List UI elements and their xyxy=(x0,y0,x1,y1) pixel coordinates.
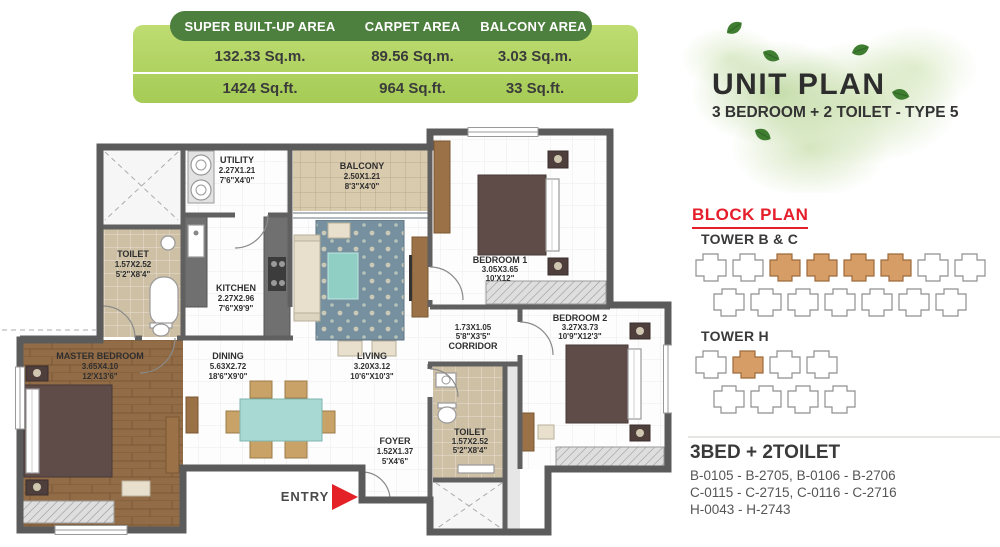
svg-text:TOILET: TOILET xyxy=(117,249,149,259)
desk xyxy=(522,413,534,451)
toilet2-label: TOILET 1.57X2.52 5'2"X8'4" xyxy=(452,427,489,455)
dining-chair xyxy=(226,411,241,433)
dining-table xyxy=(240,399,322,441)
svg-text:7'6"X9'9": 7'6"X9'9" xyxy=(219,304,254,313)
wc-icon xyxy=(153,324,169,336)
tower-bc-label: TOWER B & C xyxy=(701,231,798,247)
utility-furniture xyxy=(188,151,214,203)
area-table-values: 132.33 Sq.m. 89.56 Sq.m. 3.03 Sq.m. 1424… xyxy=(133,41,638,103)
block-plan-heading: BLOCK PLAN xyxy=(692,205,808,229)
washer-icon xyxy=(191,155,211,175)
balcony-label: BALCONY 2.50X1.21 8'3"X4'0" xyxy=(340,161,385,191)
tv-icon xyxy=(409,255,412,301)
svg-text:3.05X3.65: 3.05X3.65 xyxy=(482,265,519,274)
entry-label: ENTRY xyxy=(281,489,330,504)
floor-plan: UTILITY 2.27X1.21 7'6"X4'0" BALCONY 2.50… xyxy=(0,117,672,547)
kitchen-label: KITCHEN 2.27X2.96 7'6"X9'9" xyxy=(216,283,256,313)
unit-listing-line: B-0105 - B-2705, B-0106 - B-2706 xyxy=(690,468,896,483)
svg-text:MASTER BEDROOM: MASTER BEDROOM xyxy=(56,351,144,361)
utility-label: UTILITY 2.27X1.21 7'6"X4'0" xyxy=(219,155,256,185)
svg-text:KITCHEN: KITCHEN xyxy=(216,283,256,293)
tower-h-diagram xyxy=(692,345,862,417)
leaf-icon xyxy=(761,47,782,64)
unit-listing-heading: 3BED + 2TOILET xyxy=(690,442,840,464)
wardrobe xyxy=(486,281,606,304)
svg-text:10'X12": 10'X12" xyxy=(486,274,515,283)
bed xyxy=(478,175,546,255)
svg-text:1.73X1.05: 1.73X1.05 xyxy=(455,323,492,332)
svg-text:DINING: DINING xyxy=(212,351,244,361)
entry-arrow-icon xyxy=(332,484,358,510)
svg-text:7'6"X4'0": 7'6"X4'0" xyxy=(220,176,255,185)
entry-marker: ENTRY xyxy=(281,484,358,510)
area-row-sqft: 1424 Sq.ft. 964 Sq.ft. 33 Sq.ft. xyxy=(133,72,638,103)
carpet-sqm: 89.56 Sq.m. xyxy=(350,41,475,72)
highlighted-unit xyxy=(733,351,763,378)
area-row-sqm: 132.33 Sq.m. 89.56 Sq.m. 3.03 Sq.m. xyxy=(133,41,638,72)
col-header-super-builtup: SUPER BUILT-UP AREA xyxy=(170,19,350,34)
super-builtup-sqft: 1424 Sq.ft. xyxy=(170,74,350,103)
sideboard xyxy=(186,397,198,433)
panel-divider xyxy=(688,436,1000,438)
chair xyxy=(538,425,554,439)
rug-center xyxy=(328,253,358,299)
toilet1-label: TOILET 1.57X2.52 5'2"X8'4" xyxy=(115,249,152,279)
highlighted-unit xyxy=(881,254,911,281)
svg-text:5'2"X8'4": 5'2"X8'4" xyxy=(116,270,151,279)
col-header-carpet: CARPET AREA xyxy=(350,19,475,34)
svg-text:FOYER: FOYER xyxy=(379,436,411,446)
svg-text:10'6"X10'3": 10'6"X10'3" xyxy=(350,372,394,381)
leaf-icon xyxy=(752,125,773,143)
page-subtitle: 3 BEDROOM + 2 TOILET - TYPE 5 xyxy=(712,104,958,122)
wardrobe xyxy=(556,447,664,467)
svg-text:3.65X4.10: 3.65X4.10 xyxy=(82,362,119,371)
washer-icon xyxy=(191,180,211,200)
svg-text:UTILITY: UTILITY xyxy=(220,155,254,165)
highlighted-unit xyxy=(844,254,874,281)
page-title: UNIT PLAN xyxy=(712,68,886,102)
svg-text:CORRIDOR: CORRIDOR xyxy=(449,341,498,351)
svg-text:3.20X3.12: 3.20X3.12 xyxy=(354,362,391,371)
unit-listing-line: H-0043 - H-2743 xyxy=(690,502,791,517)
super-builtup-sqm: 132.33 Sq.m. xyxy=(170,41,350,72)
svg-text:1.52X1.37: 1.52X1.37 xyxy=(377,447,414,456)
svg-text:8'3"X4'0": 8'3"X4'0" xyxy=(345,182,380,191)
col-header-balcony: BALCONY AREA xyxy=(475,19,592,34)
svg-text:2.27X2.96: 2.27X2.96 xyxy=(218,294,255,303)
tower-h-label: TOWER H xyxy=(701,328,769,344)
wc-icon xyxy=(438,407,456,423)
leaf-icon xyxy=(850,42,871,58)
svg-text:BALCONY: BALCONY xyxy=(340,161,385,171)
balcony-sqm: 3.03 Sq.m. xyxy=(475,41,595,72)
svg-text:2.50X1.21: 2.50X1.21 xyxy=(344,172,381,181)
svg-text:TOILET: TOILET xyxy=(454,427,486,437)
svg-text:5'X4'6": 5'X4'6" xyxy=(382,457,408,466)
unit-listing-line: C-0115 - C-2715, C-0116 - C-2716 xyxy=(690,485,897,500)
dining-chair xyxy=(285,441,307,458)
balcony-sqft: 33 Sq.ft. xyxy=(475,74,595,103)
svg-text:LIVING: LIVING xyxy=(357,351,387,361)
svg-text:2.27X1.21: 2.27X1.21 xyxy=(219,166,256,175)
bathtub-icon xyxy=(150,277,178,325)
bench xyxy=(122,481,150,496)
sofa xyxy=(294,241,320,315)
tower-bc-diagram xyxy=(692,248,992,320)
dining-chair xyxy=(250,381,272,398)
dining-chair xyxy=(285,381,307,398)
svg-text:5'8"X3'5": 5'8"X3'5" xyxy=(456,332,491,341)
dining-chair xyxy=(250,441,272,458)
leaf-icon xyxy=(724,18,745,37)
svg-text:3.27X3.73: 3.27X3.73 xyxy=(562,323,599,332)
svg-text:BEDROOM 2: BEDROOM 2 xyxy=(553,313,608,323)
highlighted-unit xyxy=(807,254,837,281)
pouf xyxy=(328,223,350,238)
tv-unit xyxy=(412,237,428,317)
balcony-floor xyxy=(293,147,430,215)
bed xyxy=(566,345,628,423)
balcony-slider-door xyxy=(293,211,430,220)
svg-text:BEDROOM 1: BEDROOM 1 xyxy=(473,255,528,265)
area-table-header: SUPER BUILT-UP AREA CARPET AREA BALCONY … xyxy=(170,11,592,41)
carpet-sqft: 964 Sq.ft. xyxy=(350,74,475,103)
svg-text:5.63X2.72: 5.63X2.72 xyxy=(210,362,247,371)
wardrobe-unit xyxy=(434,141,450,233)
svg-text:1.57X2.52: 1.57X2.52 xyxy=(115,260,152,269)
shower-tray xyxy=(458,465,494,473)
svg-text:1.57X2.52: 1.57X2.52 xyxy=(452,437,489,446)
svg-text:10'9"X12'3": 10'9"X12'3" xyxy=(558,332,602,341)
unit-plan-page: SUPER BUILT-UP AREA CARPET AREA BALCONY … xyxy=(0,0,1000,547)
svg-text:5'2"X8'4": 5'2"X8'4" xyxy=(453,446,488,455)
dresser xyxy=(166,417,179,473)
washbasin-icon xyxy=(161,236,175,250)
svg-text:18'6"X9'0": 18'6"X9'0" xyxy=(209,372,248,381)
leaf-icon xyxy=(891,87,911,102)
wardrobe xyxy=(22,501,114,523)
dining-label: DINING 5.63X2.72 18'6"X9'0" xyxy=(209,351,248,381)
highlighted-unit xyxy=(770,254,800,281)
svg-text:12'X13'6": 12'X13'6" xyxy=(82,372,117,381)
sink-icon xyxy=(188,225,204,257)
